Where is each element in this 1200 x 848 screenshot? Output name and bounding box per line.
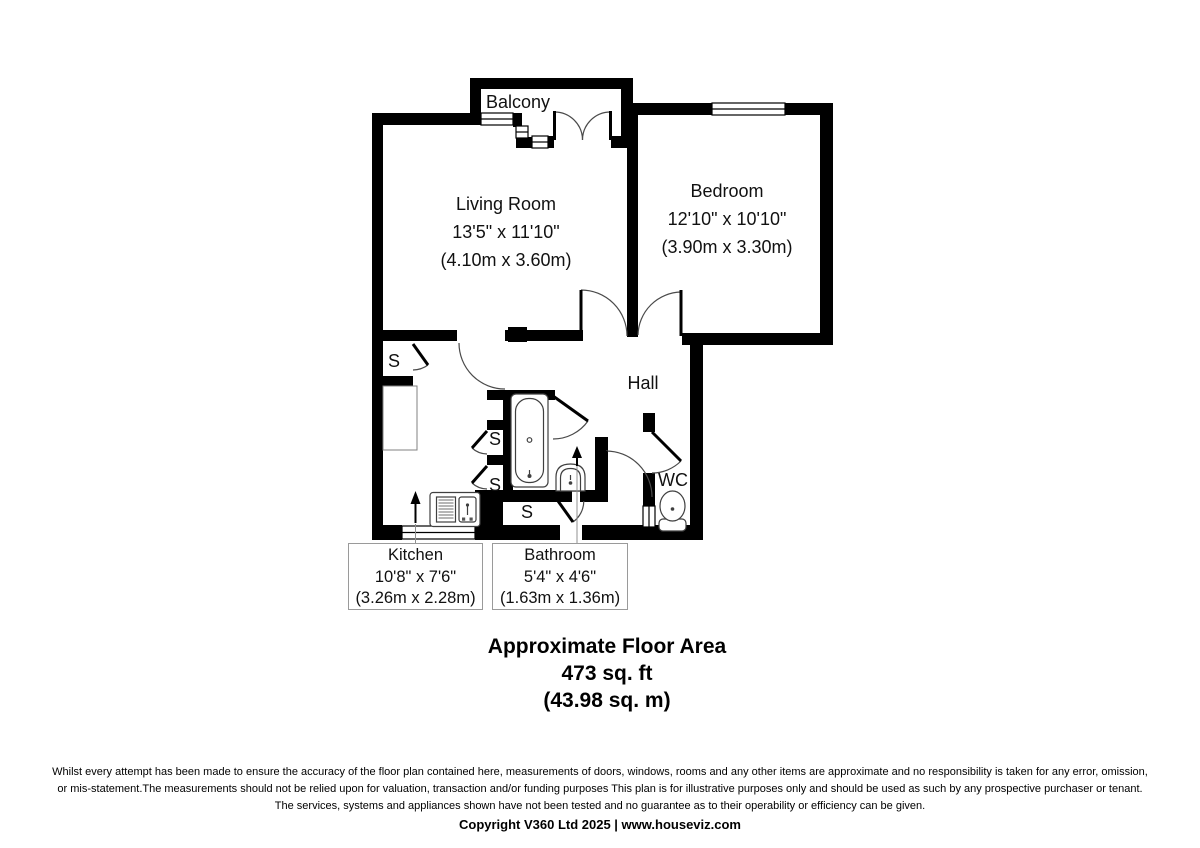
- kitchen-door-arc: [459, 343, 505, 389]
- store1-door-arc: [413, 365, 428, 370]
- area-summary-metric: (43.98 sq. m): [488, 687, 726, 714]
- balcony-door-side-window: [532, 136, 548, 148]
- store1-door-leaf: [413, 344, 428, 365]
- bathroom-arrow-icon: [572, 446, 582, 466]
- bathroom-door-arc: [553, 421, 588, 439]
- balcony-side-window: [516, 126, 528, 138]
- kitchen-arrow-icon: [411, 491, 421, 523]
- room-dims-metric: (1.63m x 1.36m): [493, 588, 627, 610]
- bathroom-callout-box: Bathroom 5'4" x 4'6" (1.63m x 1.36m): [492, 543, 628, 610]
- living-room-door-arc: [581, 290, 627, 336]
- kitchen-counter: [383, 386, 417, 450]
- area-summary-imperial: 473 sq. ft: [488, 660, 726, 687]
- storage-letter: S: [489, 425, 501, 453]
- floor-plan-drawing: [0, 0, 1200, 848]
- room-name: Living Room: [440, 190, 571, 218]
- store3-door-leaf: [472, 466, 487, 483]
- room-dims-metric: (4.10m x 3.60m): [440, 246, 571, 274]
- room-name: Bedroom: [661, 177, 792, 205]
- room-name: WC: [658, 466, 688, 494]
- room-dims-imperial: 5'4" x 4'6": [493, 567, 627, 589]
- wash-basin: [556, 464, 585, 491]
- storage-letter: S: [489, 471, 501, 499]
- room-name: Balcony: [486, 88, 550, 116]
- room-dims-imperial: 12'10" x 10'10": [661, 205, 792, 233]
- room-dims-metric: (3.90m x 3.30m): [661, 233, 792, 261]
- wc-door-leaf: [652, 432, 681, 461]
- room-dims-metric: (3.26m x 2.28m): [349, 588, 482, 610]
- walls: [372, 78, 833, 540]
- store2-door-arc: [472, 448, 487, 454]
- room-name: Hall: [627, 369, 658, 397]
- kitchen-callout-box: Kitchen 10'8" x 7'6" (3.26m x 2.28m): [348, 543, 483, 610]
- store4-door-leaf: [558, 501, 573, 522]
- windows: [402, 103, 785, 539]
- store4-door-arc: [573, 501, 584, 522]
- storage-letter: S: [388, 347, 400, 375]
- room-name: Kitchen: [349, 545, 482, 567]
- disclaimer-line: Whilst every attempt has been made to en…: [0, 764, 1200, 781]
- area-summary-title: Approximate Floor Area: [488, 633, 726, 660]
- floor-plan-page: Balcony Living Room 13'5" x 11'10" (4.10…: [0, 0, 1200, 848]
- wc-window: [643, 506, 655, 527]
- disclaimer-line: or mis-statement.The measurements should…: [0, 781, 1200, 798]
- storage-label-1: S: [388, 347, 400, 375]
- living-room-label: Living Room 13'5" x 11'10" (4.10m x 3.60…: [440, 190, 571, 274]
- room-dims-imperial: 10'8" x 7'6": [349, 567, 482, 589]
- room-dims-imperial: 13'5" x 11'10": [440, 218, 571, 246]
- kitchen-window: [402, 526, 475, 539]
- room-name: Bathroom: [493, 545, 627, 567]
- bedroom-label: Bedroom 12'10" x 10'10" (3.90m x 3.30m): [661, 177, 792, 261]
- balcony-label: Balcony: [486, 88, 550, 116]
- hall-label: Hall: [627, 369, 658, 397]
- bathroom-door-leaf: [553, 396, 588, 421]
- balcony-french-door-arc-left: [555, 112, 583, 140]
- storage-label-2: S: [489, 425, 501, 453]
- wc-label: WC: [658, 466, 688, 494]
- kitchen-sink-unit: [430, 493, 480, 527]
- area-summary: Approximate Floor Area 473 sq. ft (43.98…: [488, 633, 726, 714]
- copyright-line: Copyright V360 Ltd 2025 | www.houseviz.c…: [0, 816, 1200, 833]
- store3-door-arc: [472, 483, 487, 489]
- disclaimer-line: The services, systems and appliances sho…: [0, 798, 1200, 815]
- footer: Whilst every attempt has been made to en…: [0, 764, 1200, 833]
- storage-letter: S: [521, 498, 533, 526]
- bedroom-window: [712, 103, 785, 115]
- bedroom-door-arc: [638, 292, 681, 335]
- store2-door-leaf: [472, 431, 487, 448]
- bathtub: [511, 394, 548, 487]
- storage-label-3: S: [489, 471, 501, 499]
- balcony-french-door-arc-right: [583, 112, 611, 140]
- toilet: [659, 491, 686, 531]
- storage-label-4: S: [521, 498, 533, 526]
